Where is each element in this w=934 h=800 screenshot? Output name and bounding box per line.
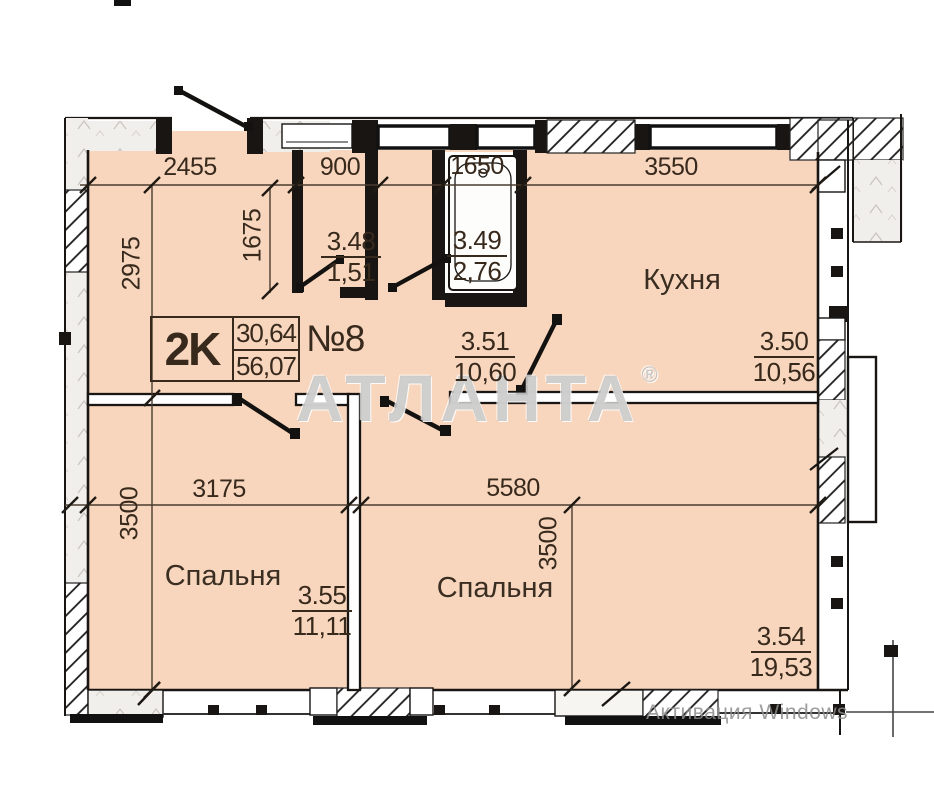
dim-top-1650: 1650	[432, 152, 522, 181]
dim-top-900: 900	[295, 153, 385, 182]
dim-mid-3175: 3175	[174, 475, 264, 504]
activation-watermark: Активация Windows	[646, 701, 848, 725]
label-bedroom2: Спальня	[410, 572, 580, 605]
apartment-type: 2K	[152, 318, 232, 380]
top-edge-mark	[114, 0, 131, 6]
room-num-kitchen: 3.5010,56	[742, 327, 826, 386]
registered-mark: ®	[642, 362, 663, 387]
title-block: 2K 30,64 56,07	[150, 316, 300, 382]
room-num-hall: 3.5110,60	[443, 327, 527, 386]
dim-wc-1675: 1675	[239, 196, 268, 276]
living-area: 30,64	[234, 318, 298, 351]
dim-mid-5580: 5580	[468, 474, 558, 503]
dim-top-3550: 3550	[626, 153, 716, 182]
room-num-bedroom2: 3.5419,53	[739, 622, 823, 681]
room-num-bath: 3.492,76	[435, 226, 519, 285]
label-kitchen: Кухня	[597, 264, 767, 297]
balcony	[848, 357, 876, 522]
unit-number: №8	[306, 318, 386, 360]
dim-top-2455: 2455	[145, 153, 235, 182]
area-values: 30,64 56,07	[232, 318, 298, 380]
dim-left-2975: 2975	[118, 224, 147, 304]
floor-plan-page: { "title_block": { "apartment_type": "2K…	[0, 0, 934, 800]
room-num-wc: 3.481,51	[309, 227, 393, 286]
total-area: 56,07	[234, 351, 298, 382]
label-bedroom1: Спальня	[138, 560, 308, 593]
dim-left-3500: 3500	[116, 474, 145, 554]
